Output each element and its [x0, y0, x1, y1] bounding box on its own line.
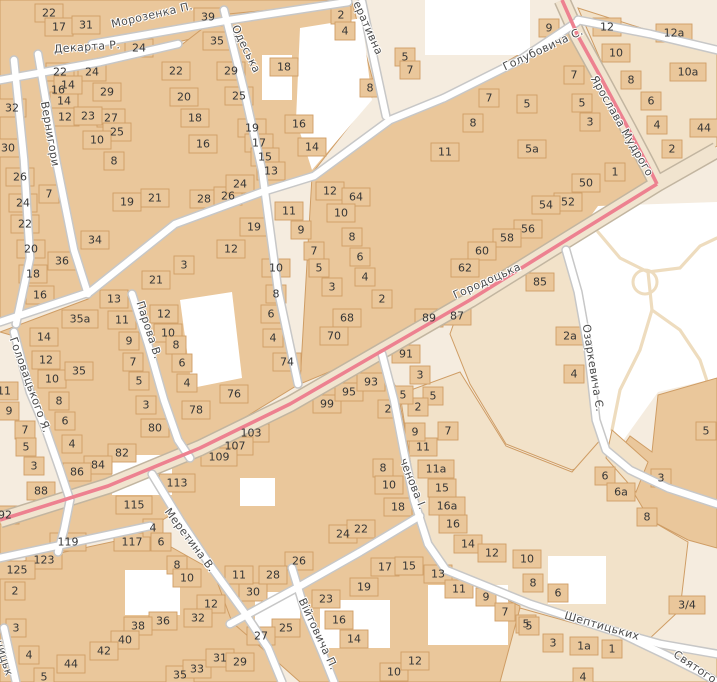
house-number: 6: [158, 536, 165, 549]
house-number: 3: [31, 460, 38, 473]
house-number: 10: [520, 553, 534, 566]
house-number: 17: [52, 21, 66, 34]
house-number: 35: [72, 365, 86, 378]
house-number: 17: [252, 137, 266, 150]
house-number: 11a: [426, 463, 447, 476]
house-number: 18: [391, 501, 405, 514]
house-number: 14: [37, 331, 51, 344]
house-number: 32: [5, 102, 19, 115]
house-number: 5: [402, 51, 409, 64]
house-number: 6: [602, 470, 609, 483]
house-number: 3: [417, 369, 424, 382]
house-number: 19: [247, 221, 261, 234]
house-number: 6: [62, 415, 69, 428]
house-number: 19: [245, 122, 259, 135]
house-number: 5: [400, 389, 407, 402]
house-number: 24: [233, 178, 247, 191]
house-number: 2: [669, 143, 676, 156]
house-number: 12: [485, 547, 499, 560]
house-number: 4: [270, 332, 277, 345]
house-number: 7: [571, 69, 578, 82]
house-number: 7: [502, 606, 509, 619]
house-number: 22: [169, 65, 183, 78]
house-number: 25: [279, 622, 293, 635]
house-number: 15: [435, 482, 449, 495]
house-number: 58: [500, 232, 514, 245]
house-number: 21: [148, 192, 162, 205]
house-number: 16: [446, 518, 460, 531]
house-number: 16: [292, 118, 306, 131]
house-number: 4: [342, 25, 349, 38]
house-number: 6a: [614, 486, 628, 499]
house-number: 11: [0, 385, 11, 398]
house-number: 3: [329, 281, 336, 294]
house-number: 30: [1, 142, 15, 155]
house-number: 2: [12, 585, 19, 598]
house-number: 12: [157, 308, 171, 321]
house-number: 35: [173, 669, 187, 682]
house-number: 5: [579, 97, 586, 110]
house-number: 29: [233, 656, 247, 669]
house-number: 2: [338, 9, 345, 22]
house-number: 15: [402, 560, 416, 573]
house-number: 7: [46, 188, 53, 201]
house-number: 25: [110, 126, 124, 139]
house-number: 3: [13, 622, 20, 635]
house-number: 5: [703, 425, 710, 438]
house-number: 28: [197, 193, 211, 206]
map-viewport[interactable]: Морозенка П.Декарта Р.ОдеськаеративнаГол…: [0, 0, 717, 682]
house-number: 42: [97, 645, 111, 658]
house-number: 23: [81, 110, 95, 123]
house-number: 1: [609, 643, 616, 656]
house-number: 22: [42, 7, 56, 20]
house-number: 12: [58, 111, 72, 124]
house-number: 5: [41, 671, 48, 682]
house-number: 22: [18, 218, 32, 231]
house-number: 60: [475, 245, 489, 258]
house-number: 19: [120, 196, 134, 209]
house-number: 125: [7, 564, 28, 577]
house-number: 44: [64, 658, 78, 671]
house-number: 4: [654, 119, 661, 132]
house-number: 22: [53, 66, 67, 79]
house-number: 14: [305, 141, 319, 154]
house-number: 5: [524, 98, 531, 111]
house-number: 24: [16, 197, 30, 210]
house-number: 109: [209, 451, 230, 464]
house-number: 18: [188, 112, 202, 125]
house-number: 115: [124, 499, 145, 512]
house-number: 32: [191, 612, 205, 625]
house-number: 8: [273, 288, 280, 301]
house-number: 8: [349, 231, 356, 244]
house-number: 44: [697, 122, 711, 135]
house-number: 6: [648, 95, 655, 108]
house-number: 8: [174, 559, 181, 572]
house-number: 84: [91, 459, 105, 472]
house-number: 14: [461, 538, 475, 551]
house-number: 11: [416, 441, 430, 454]
house-number: 11: [115, 314, 129, 327]
house-number: 16: [196, 138, 210, 151]
house-number: 26: [292, 555, 306, 568]
house-number: 54: [539, 199, 553, 212]
house-number: 24: [85, 66, 99, 79]
house-number: 31: [79, 19, 93, 32]
house-number: 103: [241, 427, 262, 440]
house-number: 3: [550, 637, 557, 650]
house-number: 1: [612, 166, 619, 179]
house-number: 15: [258, 151, 272, 164]
house-number: 8: [173, 339, 180, 352]
house-number: 35a: [70, 313, 91, 326]
house-number: 11: [438, 146, 452, 159]
house-number: 95: [342, 386, 356, 399]
house-number: 23: [319, 593, 333, 606]
house-number: 2: [379, 293, 386, 306]
house-number: 22: [354, 523, 368, 536]
house-number: 85: [533, 276, 547, 289]
house-number: 68: [340, 312, 354, 325]
house-number: 8: [530, 577, 537, 590]
house-number: 87: [450, 310, 464, 323]
house-number: 5a: [525, 143, 539, 156]
house-number: 4: [150, 522, 157, 535]
house-number: 36: [156, 615, 170, 628]
house-number: 9: [6, 405, 13, 418]
house-number: 20: [24, 243, 38, 256]
house-number: 14: [61, 79, 75, 92]
house-number: 7: [407, 64, 414, 77]
house-number: 10: [609, 47, 623, 60]
house-number: 8: [470, 117, 477, 130]
house-number: 14: [57, 95, 71, 108]
house-number: 10: [90, 134, 104, 147]
house-number: 4: [571, 368, 578, 381]
house-number: 26: [13, 171, 27, 184]
house-number: 29: [224, 65, 238, 78]
house-number: 6: [357, 251, 364, 264]
house-number: 5: [316, 262, 323, 275]
house-number: 56: [521, 223, 535, 236]
house-number: 13: [431, 568, 445, 581]
house-number: 7: [445, 425, 452, 438]
house-number: 10: [334, 207, 348, 220]
house-number: 11: [452, 583, 466, 596]
house-number: 5: [23, 441, 30, 454]
house-number: 2a: [563, 330, 577, 343]
house-number: 76: [227, 388, 241, 401]
house-number: 11: [232, 569, 246, 582]
house-number: 30: [246, 586, 260, 599]
house-number: 74: [280, 356, 294, 369]
house-number: 24: [132, 42, 146, 55]
house-number: 10: [180, 572, 194, 585]
house-number: 8: [367, 82, 374, 95]
house-number: 113: [167, 477, 188, 490]
house-number: 39: [201, 11, 215, 24]
house-number: 12: [408, 655, 422, 668]
house-number: 8: [628, 74, 635, 87]
house-number: 9: [126, 335, 133, 348]
house-number: 78: [189, 404, 203, 417]
house-number: 3: [587, 116, 594, 129]
house-number: 2: [415, 401, 422, 414]
house-number: 82: [115, 447, 129, 460]
house-number: 10a: [678, 66, 699, 79]
house-number: 16: [33, 289, 47, 302]
house-number: 29: [100, 86, 114, 99]
house-number: 92: [0, 509, 12, 522]
house-number: 117: [122, 536, 143, 549]
house-number: 9: [483, 591, 490, 604]
house-number: 14: [347, 633, 361, 646]
house-number: 9: [298, 224, 305, 237]
house-number: 3: [658, 472, 665, 485]
house-number: 7: [130, 356, 137, 369]
house-number: 86: [70, 466, 84, 479]
house-number: 38: [131, 620, 145, 633]
house-number: 16a: [437, 500, 458, 513]
house-number: 4: [362, 271, 369, 284]
house-number: 27: [104, 112, 118, 125]
house-number: 89: [422, 312, 436, 325]
house-number: 4: [184, 377, 191, 390]
house-number: 6: [555, 587, 562, 600]
house-number: 20: [177, 91, 191, 104]
house-number: 24: [336, 528, 350, 541]
house-number: 12a: [664, 27, 685, 40]
house-number: 4: [26, 649, 33, 662]
house-number: 9: [412, 426, 419, 439]
house-number: 33: [190, 663, 204, 676]
house-number: 13: [107, 293, 121, 306]
house-number: 1a: [577, 640, 591, 653]
house-number: 62: [458, 262, 472, 275]
house-number: 12: [224, 243, 238, 256]
house-number: 12: [600, 21, 614, 34]
house-number: 31: [213, 652, 227, 665]
house-number: 27: [254, 630, 268, 643]
house-number: 4: [69, 438, 76, 451]
house-number: 64: [349, 191, 363, 204]
house-number: 3/4: [678, 599, 696, 612]
house-number: 8: [644, 511, 651, 524]
house-number: 119: [58, 536, 79, 549]
house-number: 123: [34, 554, 55, 567]
house-number: 16: [332, 614, 346, 627]
house-number: 17: [378, 561, 392, 574]
house-number: 12: [323, 185, 337, 198]
house-number: 25: [232, 90, 246, 103]
house-number: 88: [34, 485, 48, 498]
house-number: 3: [181, 259, 188, 272]
house-number: 5: [526, 620, 533, 633]
house-number: 28: [266, 569, 280, 582]
house-number: 4: [580, 671, 587, 682]
house-number: 91: [399, 348, 413, 361]
house-number: 18: [277, 61, 291, 74]
house-number: 40: [118, 634, 132, 647]
house-number: 19: [357, 581, 371, 594]
house-number: 8: [111, 155, 118, 168]
house-number: 2: [385, 403, 392, 416]
house-number: 50: [579, 177, 593, 190]
house-number: 9: [546, 22, 553, 35]
house-number: 5: [430, 390, 437, 403]
house-number: 70: [327, 330, 341, 343]
house-number: 12: [204, 598, 218, 611]
house-number: 21: [149, 274, 163, 287]
house-number: 7: [486, 92, 493, 105]
house-number: 13: [264, 165, 278, 178]
house-number: 10: [387, 666, 401, 679]
house-number: 3: [143, 399, 150, 412]
house-number: 6: [268, 308, 275, 321]
house-number: 8: [56, 395, 63, 408]
house-number: 26: [221, 190, 235, 203]
house-number: 80: [148, 422, 162, 435]
house-number: 8: [380, 462, 387, 475]
house-number: 35: [210, 35, 224, 48]
house-number: 12: [39, 354, 53, 367]
house-number: 18: [26, 268, 40, 281]
house-number: 5: [136, 375, 143, 388]
house-number: 52: [561, 196, 575, 209]
house-number: 11: [282, 205, 296, 218]
house-number: 10: [45, 373, 59, 386]
house-number: 7: [22, 424, 29, 437]
house-number: 36: [55, 255, 69, 268]
house-number: 99: [320, 398, 334, 411]
house-number: 6: [179, 357, 186, 370]
house-number: 10: [382, 479, 396, 492]
house-number: 10: [269, 262, 283, 275]
house-number: 34: [88, 234, 102, 247]
house-number: 7: [311, 245, 318, 258]
house-number: 93: [364, 376, 378, 389]
